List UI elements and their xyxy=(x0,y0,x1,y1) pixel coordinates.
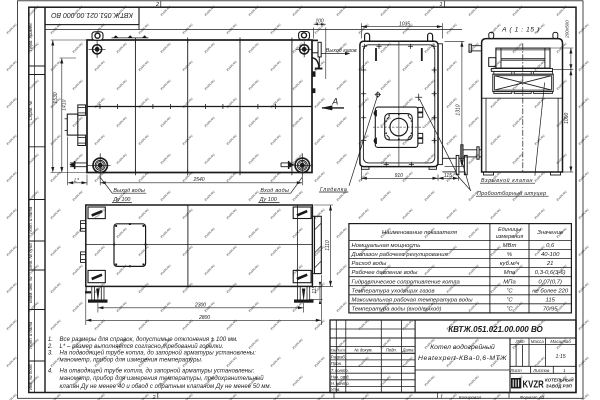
svg-text:Взам. инв. №: Взам. инв. № xyxy=(28,276,33,303)
svg-text:манометр, прибор для измерения: манометр, прибор для измерения температу… xyxy=(60,375,265,382)
svg-text:Разраб.: Разраб. xyxy=(331,355,346,360)
svg-text:Формат А3: Формат А3 xyxy=(520,395,545,400)
svg-text:Инв. № дубл.: Инв. № дубл. xyxy=(28,242,33,268)
svg-text:Взрывной клапан: Взрывной клапан xyxy=(481,177,533,184)
svg-text:А: А xyxy=(331,97,338,107)
svg-text:L* – размер выполняется соглас: L* – размер выполняется согласно требова… xyxy=(60,343,224,350)
svg-text:0,07(0,7): 0,07(0,7) xyxy=(538,279,562,285)
svg-text:4.: 4. xyxy=(48,369,53,375)
svg-text:Максимальная рабочая температу: Максимальная рабочая температура воды xyxy=(352,297,474,303)
svg-text:100: 100 xyxy=(315,19,324,25)
svg-text:манометр, прибор для измерения: манометр, прибор для измерения температу… xyxy=(60,358,203,364)
svg-text:3.: 3. xyxy=(48,351,53,357)
svg-text:Подп. и дата: Подп. и дата xyxy=(28,206,33,234)
svg-text:Инв. № подл.: Инв. № подл. xyxy=(28,363,33,390)
svg-text:Подп. и дата: Подп. и дата xyxy=(28,321,33,349)
svg-text:%: % xyxy=(507,252,512,258)
svg-text:115: 115 xyxy=(444,173,452,179)
svg-text:Перв. примен.: Перв. примен. xyxy=(28,22,33,51)
svg-text:0,3-0,6(3-6): 0,3-0,6(3-6) xyxy=(535,270,566,276)
svg-text:Масштаб: Масштаб xyxy=(550,339,571,344)
svg-text:1090: 1090 xyxy=(564,113,570,124)
svg-text:Мпа: Мпа xyxy=(504,270,516,276)
svg-text:200х500: 200х500 xyxy=(565,20,570,39)
svg-text:1110: 1110 xyxy=(325,240,331,251)
svg-text:№ докум.: № докум. xyxy=(354,348,372,353)
svg-text:˚С: ˚С xyxy=(506,287,513,294)
svg-text:На подводящей трубе котла, до: На подводящей трубе котла, до запорной а… xyxy=(60,350,257,357)
svg-text:МВт: МВт xyxy=(503,243,517,249)
svg-text:115: 115 xyxy=(312,286,318,294)
svg-text:1035: 1035 xyxy=(399,21,410,27)
svg-text:Гляделка: Гляделка xyxy=(320,187,347,193)
svg-text:Выход газов: Выход газов xyxy=(326,48,357,54)
svg-text:21: 21 xyxy=(546,261,554,267)
svg-text:А ( 1 : 15 ): А ( 1 : 15 ) xyxy=(501,27,540,34)
svg-text:Ду 100: Ду 100 xyxy=(112,197,130,203)
svg-text:Н. контр.: Н. контр. xyxy=(331,381,350,386)
svg-text:Диапазон рабочего регулировани: Диапазон рабочего регулирования xyxy=(351,252,449,258)
svg-text:Лист: Лист xyxy=(509,368,522,373)
svg-text:1: 1 xyxy=(439,2,442,8)
svg-text:KVZR: KVZR xyxy=(523,378,545,390)
svg-text:Справ. №: Справ. № xyxy=(28,100,33,120)
svg-text:2.: 2. xyxy=(47,344,53,350)
svg-text:МПа: МПа xyxy=(503,279,516,285)
svg-text:Лит: Лит xyxy=(514,339,524,344)
svg-text:1310: 1310 xyxy=(456,104,462,115)
svg-text:˚С: ˚С xyxy=(506,305,513,312)
svg-text:Котел водогрейный: Котел водогрейный xyxy=(430,343,495,351)
svg-text:Утв.: Утв. xyxy=(331,387,341,392)
svg-text:КВТЖ.051.021.00.000 ВО: КВТЖ.051.021.00.000 ВО xyxy=(51,11,133,18)
svg-text:КВТЖ.051.021.00.000 ВО: КВТЖ.051.021.00.000 ВО xyxy=(448,325,543,334)
svg-text:Дата: Дата xyxy=(401,348,414,353)
svg-text:Heatexpert-КВа-0,6-МТЖ: Heatexpert-КВа-0,6-МТЖ xyxy=(418,355,507,362)
svg-text:измерения: измерения xyxy=(496,234,524,240)
svg-text:40-100: 40-100 xyxy=(541,252,560,258)
svg-text:Температура воды (вход/выход): Температура воды (вход/выход) xyxy=(352,306,442,312)
svg-text:0,6: 0,6 xyxy=(546,243,555,249)
svg-text:70/95: 70/95 xyxy=(543,306,558,312)
svg-text:не более 220: не более 220 xyxy=(532,288,569,294)
svg-text:Пробоотборный штуцер: Пробоотборный штуцер xyxy=(477,190,546,197)
svg-text:Т. контр.: Т. контр. xyxy=(331,368,349,373)
svg-text:2: 2 xyxy=(155,2,159,8)
svg-text:На отводящей трубе котла, до з: На отводящей трубе котла, до запорной ар… xyxy=(60,368,255,375)
svg-text:Рабочее давление воды: Рабочее давление воды xyxy=(352,270,419,276)
svg-text:Выход воды: Выход воды xyxy=(113,188,145,194)
svg-text:Значение: Значение xyxy=(537,230,564,236)
svg-text:Все размеры для справок, допус: Все размеры для справок, допустимые откл… xyxy=(60,337,238,343)
svg-text:Нач. отд.: Нач. отд. xyxy=(331,374,350,379)
svg-text:2: 2 xyxy=(151,395,155,400)
svg-text:Расход воды: Расход воды xyxy=(352,261,388,267)
svg-text:Ду 100: Ду 100 xyxy=(259,197,277,203)
svg-text:Листов: Листов xyxy=(532,368,550,373)
svg-text:2300: 2300 xyxy=(194,303,206,309)
svg-text:2800: 2800 xyxy=(198,315,210,321)
svg-text:910: 910 xyxy=(395,173,404,179)
svg-text:1.: 1. xyxy=(48,337,53,343)
svg-text:Температура уходящих газов: Температура уходящих газов xyxy=(352,288,435,294)
svg-text:115: 115 xyxy=(546,297,556,303)
svg-text:Вход воды: Вход воды xyxy=(260,188,289,194)
svg-text:Единицы: Единицы xyxy=(498,227,521,233)
svg-text:1410: 1410 xyxy=(61,99,67,110)
svg-text:клапан Ду не менее 40 и обвод: клапан Ду не менее 40 и обвод с обратным… xyxy=(60,384,272,390)
svg-text:1:15: 1:15 xyxy=(556,354,566,360)
svg-text:2540: 2540 xyxy=(192,177,204,183)
svg-text:Пров.: Пров. xyxy=(331,361,342,366)
svg-text:Подп.: Подп. xyxy=(386,348,397,353)
svg-text:КОТЕЛЬНЫЙ: КОТЕЛЬНЫЙ xyxy=(545,378,574,383)
svg-text:˚С: ˚С xyxy=(506,296,513,303)
svg-text:Номинальная мощность: Номинальная мощность xyxy=(352,243,421,249)
svg-text:1530: 1530 xyxy=(53,92,59,103)
svg-text:Гидравлическое сопротивление к: Гидравлическое сопротивление котла xyxy=(352,279,461,285)
svg-text:Копировал: Копировал xyxy=(459,395,482,400)
svg-text:1: 1 xyxy=(440,395,443,400)
svg-text:ЗАВОД РЭП: ЗАВОД РЭП xyxy=(546,383,573,388)
svg-text:Наименование показателя: Наименование показателя xyxy=(382,230,458,236)
svg-text:Лист: Лист xyxy=(335,348,347,353)
svg-text:куб.м/ч: куб.м/ч xyxy=(500,261,520,267)
svg-text:Масса: Масса xyxy=(531,339,545,344)
